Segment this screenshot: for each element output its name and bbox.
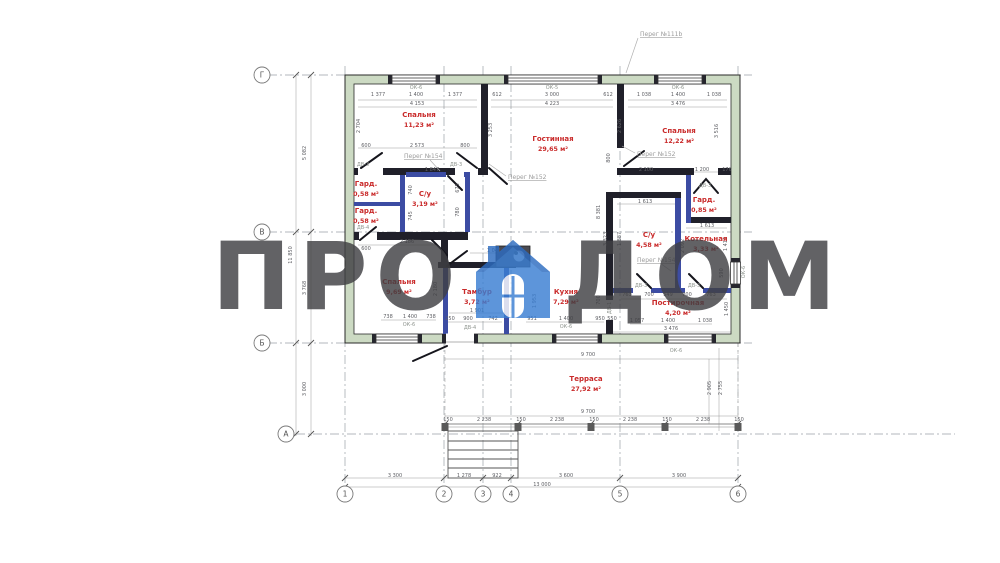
dim-label: 2 704 (356, 119, 362, 133)
floor-plan-drawing: ГВБА123456 1 377ОК-61 4001 3774 153612ОК… (0, 0, 1000, 563)
room-name-label: Постирочная (652, 299, 704, 307)
door-dv4-entrance-opening (446, 334, 474, 344)
dim-label: 1 038 (637, 92, 651, 98)
dim-label: 763 (706, 292, 716, 298)
room-name-label: Кухня (554, 288, 578, 296)
partition-label: Перег №111b (640, 31, 682, 38)
room-area-label: 3,33 м² (693, 246, 719, 253)
opening-label: ДВ-4 (357, 225, 369, 231)
room-area-label: 29,65 м² (538, 146, 568, 153)
dim-label: 3 000 (545, 92, 559, 98)
dim-label: 2 180 (433, 282, 439, 296)
room-name-label: С/у (419, 190, 432, 198)
room-area-label: 0,58 м² (353, 191, 379, 198)
opening-label: ОК-6 (560, 324, 572, 330)
dim-label: 612 (492, 92, 502, 98)
room-name-label: Гард. (693, 196, 716, 204)
axis-label: 1 (343, 490, 348, 499)
room-name-label: С/у (643, 231, 656, 239)
opening-label: ОК-6 (410, 85, 422, 91)
dim-label: 800 (606, 153, 612, 163)
dim-label: 600 (361, 143, 371, 149)
room-name-label: Спальня (402, 111, 436, 119)
dim-label: 738 (426, 314, 436, 320)
dim-label: 3 476 (664, 326, 678, 332)
dim-label: 780 (455, 207, 461, 217)
dim-label: 1 400 (559, 316, 573, 322)
dim-label: 1 400 (661, 318, 675, 324)
dim-label: 2 238 (696, 417, 710, 423)
dim-label: 3 516 (714, 124, 720, 138)
dim-label: 675 (455, 183, 461, 193)
dim-label: 13 000 (533, 482, 551, 488)
room-name-label: Котельная (685, 235, 728, 243)
dim-label: 9 700 (581, 409, 595, 415)
opening-label: ДВ-4 (464, 325, 476, 331)
dim-label: 3 476 (671, 101, 685, 107)
dim-label: 1 400 (403, 314, 417, 320)
dim-label: 3 323 (603, 232, 609, 246)
dim-label: 800 (460, 143, 470, 149)
opening-label: ДВ-3 (450, 162, 462, 168)
room-area-label: 0,58 м² (353, 218, 379, 225)
room-area-label: 27,92 м² (571, 386, 601, 393)
opening-label: ДВ-3 (688, 283, 700, 289)
axis-label: 6 (736, 490, 741, 499)
dim-label: 1 450 (724, 302, 730, 316)
dim-label: 8 381 (596, 205, 602, 219)
dim-label: 4 153 (410, 101, 424, 107)
dim-label: 763 (622, 292, 632, 298)
dim-label: 1 038 (698, 318, 712, 324)
room-area-label: 11,23 м² (404, 122, 434, 129)
dim-label: 150 (516, 417, 526, 423)
dim-label: 3 900 (672, 473, 686, 479)
room-area-label: 3,72 м² (464, 299, 490, 306)
dim-label: 150 (443, 417, 453, 423)
room-area-label: 9,69 м² (386, 289, 412, 296)
dim-label: 3 600 (559, 473, 573, 479)
dim-label: 9 700 (581, 352, 595, 358)
room-name-label: Гостинная (532, 135, 573, 143)
axis-label: 2 (442, 490, 447, 499)
dim-label: 1 057 (630, 318, 644, 324)
dim-label: 2 238 (550, 417, 564, 423)
dim-label: 1 953 (532, 294, 538, 308)
dim-label: 950 (595, 316, 605, 322)
window-ok6-top-left (392, 75, 436, 84)
dim-label: 1 400 (671, 92, 685, 98)
dim-label: 742 (488, 316, 498, 322)
opening-label: ДВ-3 (357, 162, 369, 168)
partition-label: Перег №152 (637, 151, 676, 158)
room-name-label: Спальня (662, 127, 696, 135)
dim-label: 1 377 (448, 92, 462, 98)
room-area-label: 12,22 м² (664, 138, 694, 145)
room-name-label: Терраса (569, 375, 602, 383)
axis-label: А (283, 430, 289, 439)
window-ok6-bottom-kitchen (556, 334, 598, 343)
opening-label: ОК-6 (672, 85, 684, 91)
dim-label: 590 (719, 268, 725, 278)
opening-label: ОК-6 (741, 266, 747, 278)
partition-label: Перег №152 (508, 174, 547, 181)
dim-label: 2 905 (707, 381, 713, 395)
dim-label: 1 278 (457, 473, 471, 479)
entrance-door-leaf (413, 346, 447, 361)
axis-label: Б (259, 339, 264, 348)
dim-label: 11 850 (288, 246, 294, 264)
axis-label: 5 (618, 490, 623, 499)
dim-label: 951 (527, 316, 537, 322)
axis-label: Г (260, 71, 265, 80)
dim-label: 550 (607, 316, 617, 322)
dim-label: 176 (722, 167, 732, 173)
dim-label: 2 238 (623, 417, 637, 423)
dim-label: 2 755 (718, 381, 724, 395)
dim-label: 700 (644, 292, 654, 298)
dim-label: 1 887 (617, 232, 623, 246)
axis-label: 3 (481, 490, 486, 499)
dim-label: 738 (383, 314, 393, 320)
axis-label: В (259, 228, 264, 237)
dim-label: 2 186 (400, 239, 414, 245)
opening-label: ОК-5 (546, 85, 558, 91)
dim-label: 740 (408, 185, 414, 195)
window-ok6-right-boiler (731, 262, 741, 284)
partition-label: Перег №154 (404, 153, 443, 160)
dim-label: 1 901 (470, 308, 484, 314)
dim-label: 3 768 (302, 281, 308, 295)
partition-label: Перег №154 (637, 257, 676, 264)
dim-label: 2 573 (410, 143, 424, 149)
axis-label: 4 (509, 490, 514, 499)
dim-label: 150 (734, 417, 744, 423)
room-name-label: Спальня (382, 278, 416, 286)
room-name-label: Гард. (355, 180, 378, 188)
dim-label: 150 (589, 417, 599, 423)
dim-label: 700 (596, 295, 602, 305)
room-area-label: 7,29 м² (553, 299, 579, 306)
window-ok5-top-center (508, 75, 598, 84)
dim-label: 549 (663, 292, 673, 298)
dim-label: 1 613 (700, 223, 714, 229)
dim-label: 1 613 (638, 199, 652, 205)
floor-plan-page: ГВБА123456 1 377ОК-61 4001 3774 153612ОК… (0, 0, 1000, 563)
dim-label: 4 223 (545, 101, 559, 107)
dim-label: 2 100 (639, 167, 653, 173)
dim-label: 1 377 (371, 92, 385, 98)
window-ok6-bottom-bedroom (376, 334, 418, 343)
dim-label: 612 (603, 92, 613, 98)
dim-label: 1 200 (695, 167, 709, 173)
dim-label: 2 626 (617, 119, 623, 133)
dim-label: 2 238 (477, 417, 491, 423)
dim-label: 1 041 (487, 248, 501, 254)
room-area-label: 0,85 м² (691, 207, 717, 214)
room-area-label: 4,58 м² (636, 242, 662, 249)
opening-label: ОК-6 (670, 348, 682, 354)
dim-label: 700 (682, 292, 692, 298)
dim-label: 1 400 (409, 92, 423, 98)
opening-label: ДВ-1 (607, 302, 613, 314)
opening-label: ДВ-3 (699, 183, 711, 189)
room-name-label: Гард. (355, 207, 378, 215)
dim-label: 600 (361, 246, 371, 252)
dim-label: 250 (445, 316, 455, 322)
dim-label: 900 (463, 316, 473, 322)
dim-label: 3 000 (302, 382, 308, 396)
dim-label: 5 082 (302, 146, 308, 160)
window-ok6-bottom-laundry (668, 334, 712, 343)
dim-label: 3 253 (488, 123, 494, 137)
room-name-label: Тамбур (462, 288, 492, 296)
opening-label: ДВ-3 (635, 283, 647, 289)
dim-label: 745 (408, 211, 414, 221)
dim-label: 922 (492, 473, 502, 479)
dim-label: 1 038 (707, 92, 721, 98)
dim-label: 1 847 (425, 167, 439, 173)
dim-label: 3 300 (388, 473, 402, 479)
opening-label: ОК-6 (403, 322, 415, 328)
window-ok6-top-right (658, 75, 702, 84)
room-area-label: 4,20 м² (665, 310, 691, 317)
room-area-label: 3,19 м² (412, 201, 438, 208)
dim-label: 150 (662, 417, 672, 423)
